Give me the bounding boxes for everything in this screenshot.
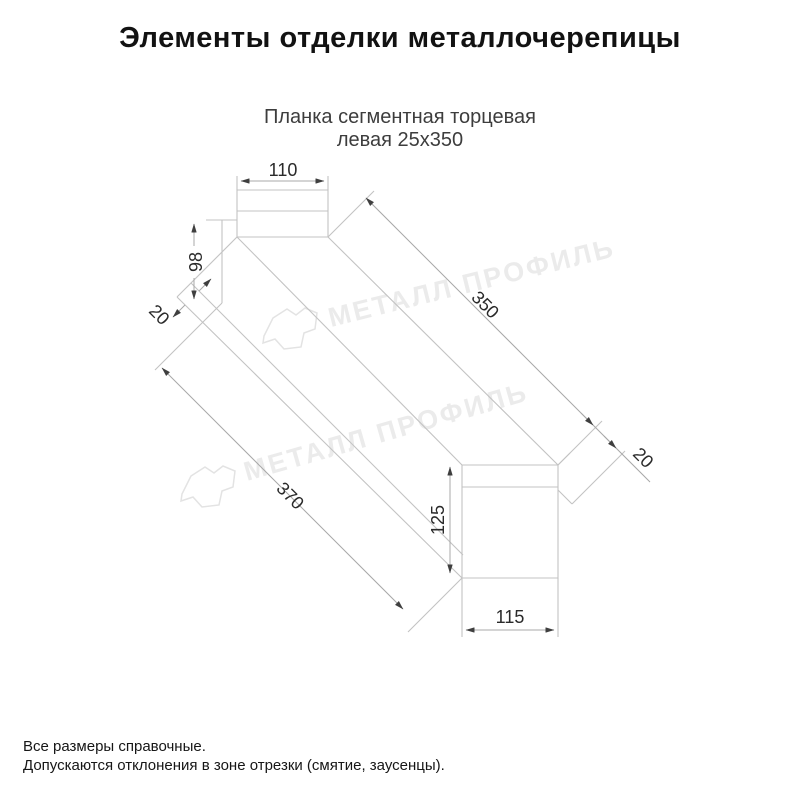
watermark-top: МЕТАЛЛ ПРОФИЛЬ [263,232,618,349]
dim-98-label: 98 [186,252,206,272]
footnote: Все размеры справочные. Допускаются откл… [23,737,445,775]
dim-20-left-label: 20 [145,301,173,329]
watermark-text: МЕТАЛЛ ПРОФИЛЬ [240,377,531,487]
dim-115-label: 115 [496,607,525,627]
extension-lines [155,176,625,637]
metall-profil-logo-icon [263,308,317,349]
metall-profil-logo-icon [181,466,235,507]
dim-20-right-label: 20 [629,444,657,472]
watermark-text: МЕТАЛЛ ПРОФИЛЬ [325,232,618,332]
technical-drawing: МЕТАЛЛ ПРОФИЛЬ МЕТАЛЛ ПРОФИЛЬ [0,0,800,800]
footnote-line2: Допускаются отклонения в зоне отрезки (с… [23,756,445,775]
dim-110-label: 110 [269,160,298,180]
dim-125-label: 125 [428,505,448,535]
footnote-line1: Все размеры справочные. [23,737,445,756]
